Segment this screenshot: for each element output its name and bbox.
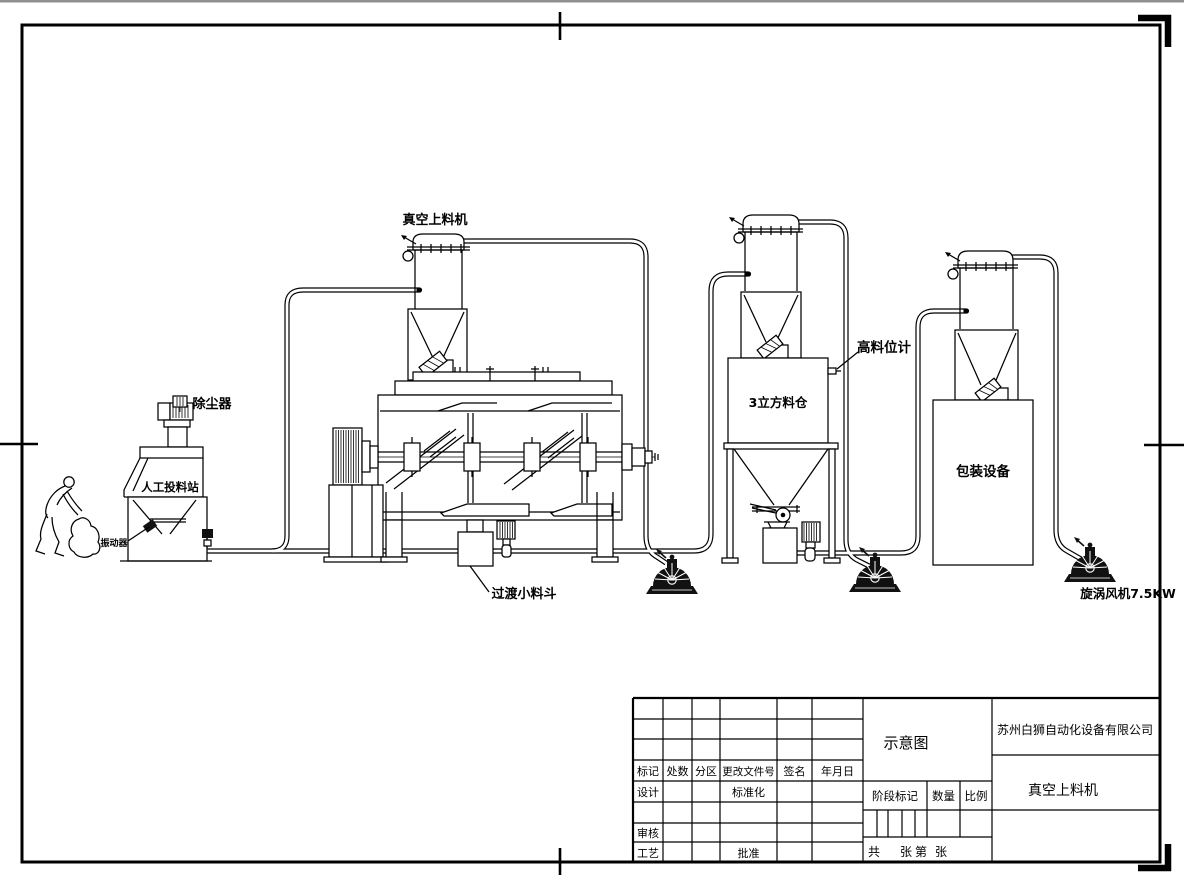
high-level-gauge-label: 高料位计: [857, 339, 911, 356]
mixer-leg: [386, 520, 402, 557]
silo-leg: [829, 449, 835, 558]
corner-mark-bottom-right: [1138, 844, 1168, 868]
tb-stage-mark: 阶段标记: [872, 789, 918, 803]
tb-header-date: 年月日: [821, 764, 854, 778]
tb-header-signature: 签名: [784, 764, 806, 778]
vent-ball: [403, 251, 413, 261]
tb-review: 审核: [637, 826, 659, 840]
material-bag: [69, 518, 100, 557]
silo-motor: [802, 522, 820, 542]
transition-hopper: [458, 532, 493, 566]
mixer-lid-plate: [413, 372, 580, 381]
feeder-body: [415, 250, 462, 309]
manual-feed-station-label: 人工投料站: [141, 480, 199, 494]
pipe-tip: [964, 308, 969, 313]
blowers: 旋涡风机7.5KW: [646, 537, 1176, 601]
pipe-tip: [746, 271, 751, 276]
tb-product-name: 真空上料机: [1028, 783, 1098, 799]
manual-feed-station: 振动器 人工投料站 除尘器: [100, 396, 232, 561]
packaging-equipment: [933, 400, 1033, 565]
vacuum-feeder-1: 真空上料机: [401, 212, 470, 380]
silo-discharge-box: [763, 528, 797, 563]
station-hopper-box: [128, 497, 207, 561]
worker-figure: [36, 477, 100, 557]
vibrator-label: 振动器: [100, 537, 128, 549]
tb-sheets: 张: [900, 845, 912, 859]
packaging-assembly: 包装设备: [933, 251, 1033, 565]
tb-header-mark: 标记: [637, 764, 659, 778]
top-strip: [0, 0, 1184, 3]
tb-header-zone: 分区: [695, 765, 717, 778]
pipe-tip: [417, 287, 422, 292]
tb-design: 设计: [637, 786, 659, 799]
vortex-blower-3: [1064, 537, 1116, 582]
tb-quantity: 数量: [932, 789, 955, 803]
vacuum-feeder-label: 真空上料机: [402, 212, 467, 228]
tb-header-change-doc: 更改文件号: [722, 765, 775, 778]
silo-leg: [727, 449, 733, 558]
mixer-lid: [395, 381, 612, 395]
silo-assembly: 高料位计 3立方料仓: [722, 215, 911, 563]
tb-drawing-type: 示意图: [883, 734, 928, 752]
silo-label: 3立方料仓: [749, 395, 808, 410]
title-block: 标记 处数 分区 更改文件号 签名 年月日 设计 标准化 审核 工艺 批准 示意…: [633, 698, 1159, 862]
tb-page: 第: [915, 845, 927, 859]
drawing-sheet: 振动器 人工投料站 除尘器 真空上料机: [0, 0, 1184, 881]
tb-header-count: 处数: [667, 765, 689, 778]
motor-stand: [329, 485, 383, 557]
vacuum-feeder-2: [745, 232, 797, 291]
transition-hopper-label: 过渡小料斗: [491, 586, 556, 602]
horizontal-mixer: 过渡小料斗: [324, 366, 658, 602]
mixer-motor: [333, 428, 362, 485]
tb-standardization: 标准化: [732, 785, 765, 799]
silo-cone: [734, 449, 828, 505]
tb-page-unit: 张: [935, 845, 947, 859]
discharge-valve: [202, 529, 213, 538]
level-sensor: [828, 368, 836, 374]
cad-canvas: 振动器 人工投料站 除尘器 真空上料机: [0, 0, 1184, 881]
dust-collector-label: 除尘器: [192, 396, 232, 412]
mixer-leg: [597, 520, 613, 557]
corner-mark-top-right: [1138, 18, 1168, 47]
tb-company: 苏州白狮自动化设备有限公司: [997, 722, 1153, 737]
tb-process: 工艺: [637, 847, 659, 860]
tb-total: 共: [868, 845, 880, 859]
vacuum-feeder-3: [960, 268, 1013, 329]
packaging-label: 包装设备: [956, 463, 1010, 480]
hopper-leader: [470, 566, 489, 592]
hood-top: [140, 447, 203, 458]
tb-scale: 比例: [965, 789, 988, 803]
vortex-blower-label: 旋涡风机7.5KW: [1079, 586, 1176, 601]
tb-approval: 批准: [738, 846, 760, 860]
